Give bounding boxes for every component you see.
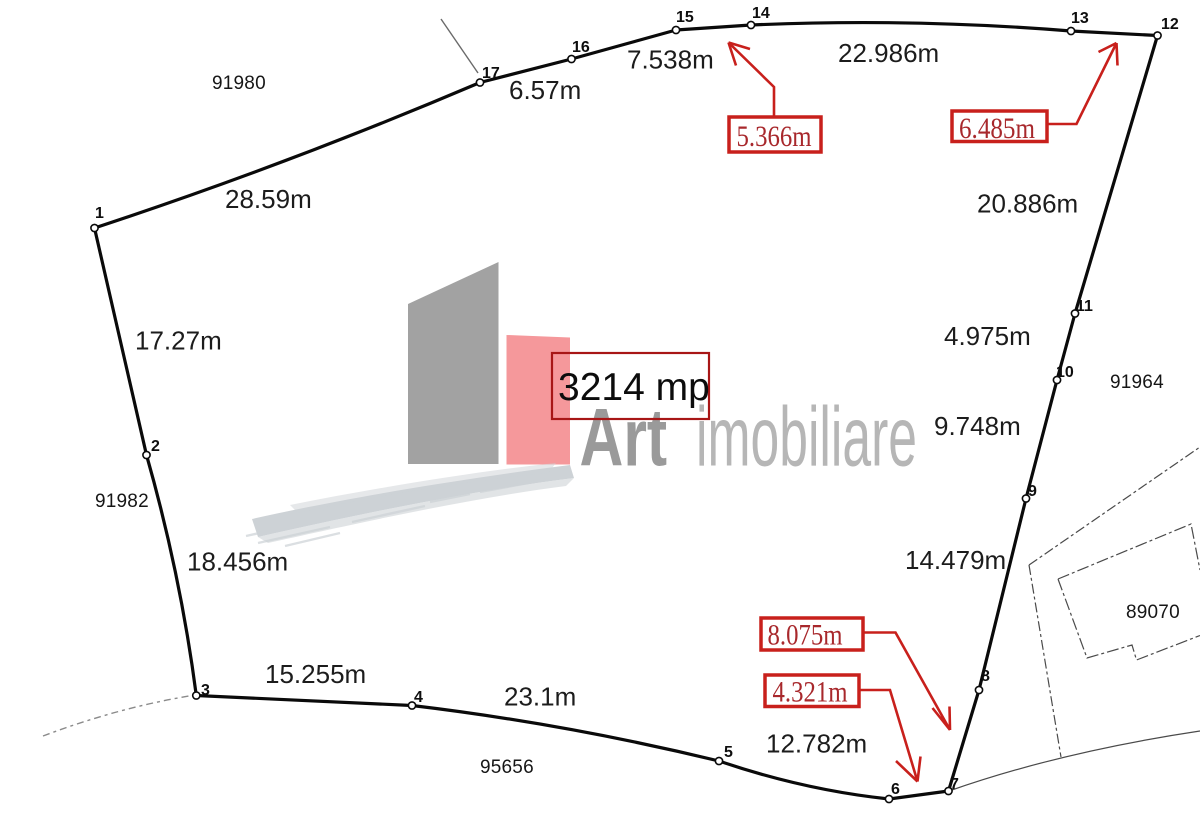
svg-text:9: 9: [1028, 483, 1037, 500]
svg-text:14: 14: [752, 5, 770, 22]
svg-text:89070: 89070: [1126, 602, 1180, 623]
svg-text:16: 16: [572, 39, 590, 56]
svg-text:4.975m: 4.975m: [944, 321, 1031, 351]
svg-text:12.782m: 12.782m: [766, 729, 867, 759]
svg-text:17.27m: 17.27m: [135, 326, 222, 356]
svg-text:3: 3: [201, 682, 210, 699]
svg-text:28.59m: 28.59m: [225, 184, 312, 214]
svg-text:10: 10: [1056, 364, 1074, 381]
svg-text:15: 15: [676, 9, 694, 26]
svg-text:91982: 91982: [95, 491, 149, 512]
svg-text:17: 17: [482, 65, 500, 82]
svg-text:95656: 95656: [480, 757, 534, 778]
svg-text:4: 4: [414, 689, 423, 706]
svg-text:12: 12: [1161, 16, 1179, 33]
svg-text:9.748m: 9.748m: [934, 411, 1021, 441]
svg-text:7: 7: [950, 776, 959, 793]
svg-text:6: 6: [891, 781, 900, 798]
svg-text:8: 8: [981, 668, 990, 685]
svg-text:22.986m: 22.986m: [838, 38, 939, 68]
svg-text:20.886m: 20.886m: [977, 189, 1078, 219]
svg-text:91964: 91964: [1110, 372, 1164, 393]
svg-text:5: 5: [724, 744, 733, 761]
svg-text:1: 1: [95, 205, 104, 222]
svg-text:7.538m: 7.538m: [627, 45, 714, 75]
svg-text:3214 mp: 3214 mp: [558, 366, 710, 409]
svg-text:15.255m: 15.255m: [265, 659, 366, 689]
svg-text:11: 11: [1076, 298, 1093, 315]
svg-text:6.57m: 6.57m: [509, 75, 581, 105]
svg-text:imobiliare: imobiliare: [696, 390, 917, 484]
svg-text:8.075m: 8.075m: [768, 619, 843, 652]
svg-text:14.479m: 14.479m: [905, 545, 1006, 575]
svg-text:4.321m: 4.321m: [773, 676, 848, 709]
svg-text:18.456m: 18.456m: [187, 547, 288, 577]
svg-text:23.1m: 23.1m: [504, 682, 576, 712]
svg-text:2: 2: [151, 438, 160, 455]
svg-text:13: 13: [1071, 10, 1089, 27]
svg-text:91980: 91980: [212, 73, 266, 94]
svg-text:6.485m: 6.485m: [959, 112, 1035, 145]
svg-text:5.366m: 5.366m: [737, 120, 812, 153]
